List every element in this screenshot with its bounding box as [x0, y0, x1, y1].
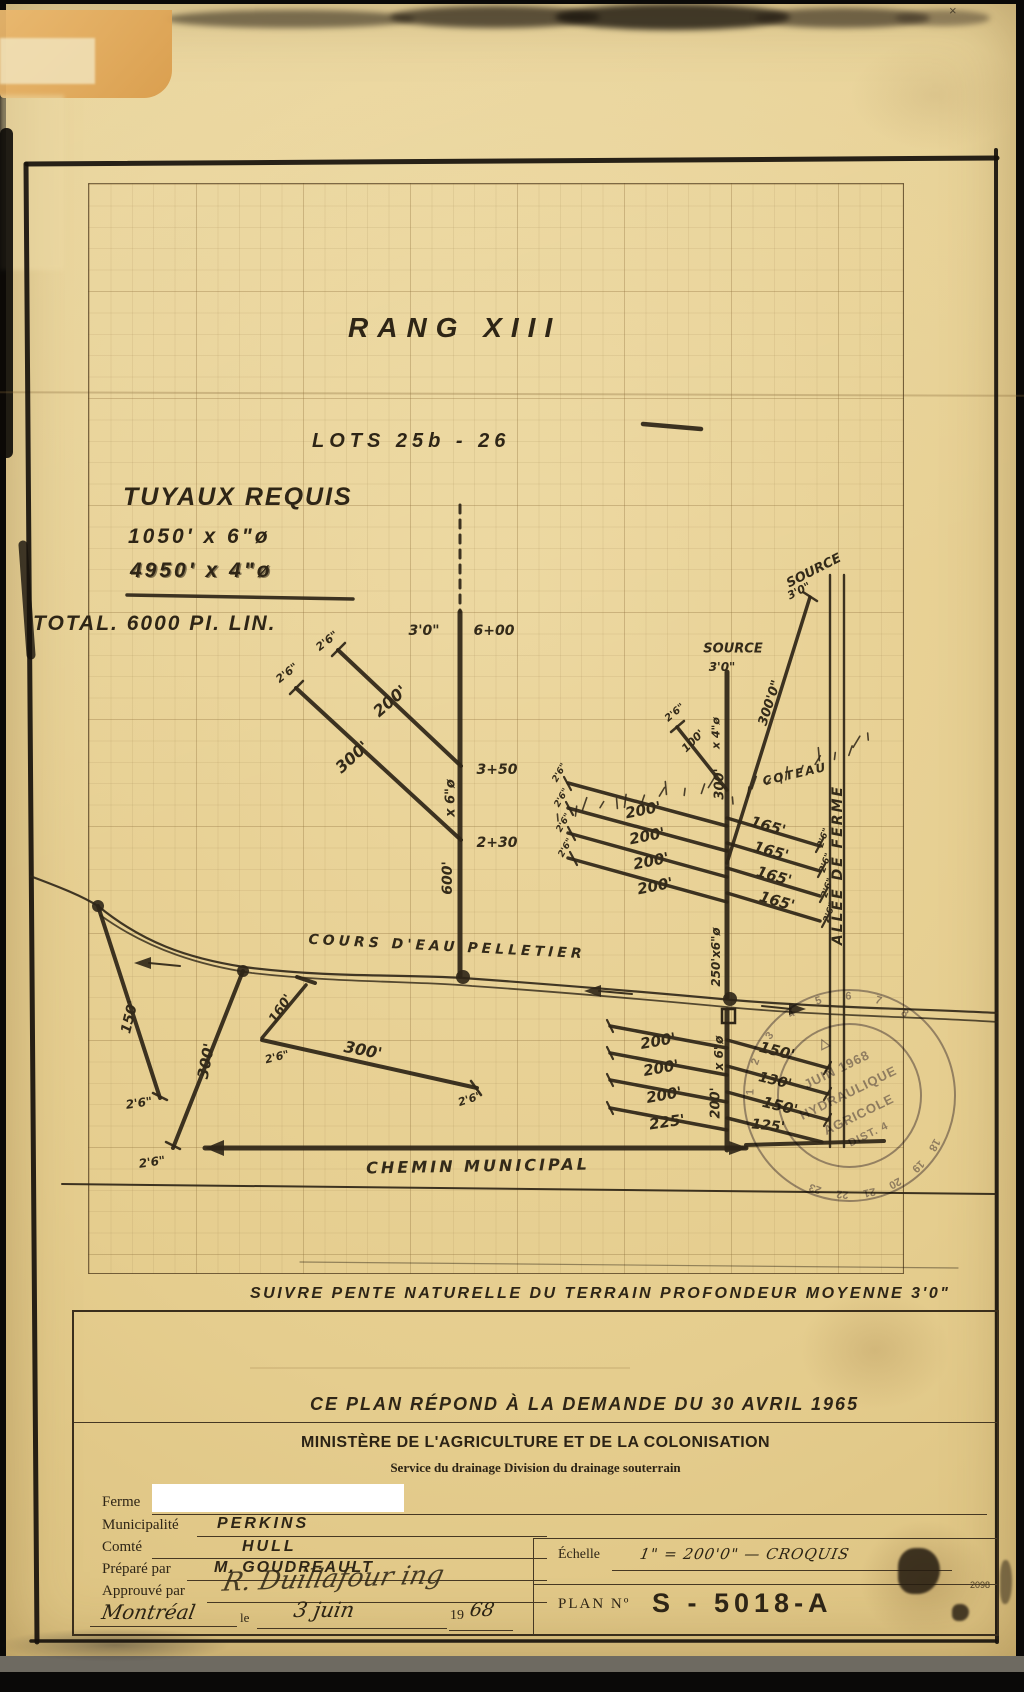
echelle-label: Échelle [558, 1547, 600, 1563]
title-block: CE PLAN RÉPOND À LA DEMANDE DU 30 AVRIL … [72, 1310, 999, 1636]
lots-subtitle: LOTS 25b - 26 [312, 430, 510, 453]
year-handwritten: 68 [468, 1599, 496, 1621]
stamp-ring-number: 6 [845, 990, 851, 1002]
measurement-label: 3'0" [709, 660, 736, 674]
drain-line [659, 787, 664, 796]
drain-line [665, 782, 666, 795]
pipes-required-line1: 1050' x 6"ø [128, 525, 271, 549]
divider-line [533, 1538, 997, 1539]
field-line [197, 1536, 547, 1537]
outlet-node [92, 900, 104, 912]
outlet-node [723, 992, 737, 1006]
measurement-label: 2+30 [477, 835, 518, 851]
field-line [449, 1630, 513, 1631]
drain-line [300, 1262, 958, 1268]
drain-line [617, 799, 618, 809]
drain-line [583, 798, 587, 810]
field-line [257, 1628, 447, 1629]
field-line [207, 1602, 547, 1603]
field-value-municipalite: PERKINS [217, 1515, 309, 1533]
field-label-comte: Comté [102, 1539, 142, 1556]
slope-note: SUIVRE PENTE NATURELLE DU TERRAIN PROFON… [250, 1285, 950, 1303]
measurement-label: 300' [713, 768, 728, 799]
sheet-frame-line [27, 158, 997, 164]
year-prefix: 19 [450, 1608, 464, 1624]
field-label-ferme: Ferme [102, 1494, 140, 1511]
measurement-label: 3+50 [477, 762, 518, 778]
flow-arrowhead [729, 1141, 748, 1155]
service-subtitle: Service du drainage Division du drainage… [74, 1460, 997, 1476]
pipes-total: TOTAL. 6000 PI. LIN. [33, 612, 276, 636]
drain-line [732, 797, 733, 804]
drain-line [849, 746, 852, 755]
measurement-label: 200' [709, 1087, 724, 1118]
drain-line [818, 748, 819, 761]
measurement-label: CHEMIN MUNICIPAL [366, 1155, 590, 1178]
le-label: le [240, 1610, 249, 1626]
drain-line [557, 814, 558, 821]
drain-line [575, 806, 576, 816]
drain-line [643, 424, 701, 429]
ministry-title: MINISTÈRE DE L'AGRICULTURE ET DE LA COLO… [74, 1434, 997, 1452]
measurement-label: 3'0" [408, 623, 439, 639]
drain-line [853, 736, 860, 747]
field-label-approuve-par: Approuvé par [102, 1583, 185, 1600]
field-label-prepare-par: Préparé par [102, 1561, 171, 1578]
demande-note: CE PLAN RÉPOND À LA DEMANDE DU 30 AVRIL … [310, 1394, 859, 1415]
drain-line [684, 788, 685, 795]
column-divider [533, 1538, 534, 1634]
pipes-required-line2: 4950' x 4"ø [130, 559, 273, 583]
sheet-frame-line [26, 164, 37, 1642]
pipes-required-heading: TUYAUX REQUIS [123, 483, 353, 512]
drain-line [701, 784, 704, 793]
outlet-node [237, 965, 249, 977]
measurement-label: x 6"ø [444, 779, 459, 817]
field-label-municipalite: Municipalité [102, 1517, 179, 1534]
drain-line [868, 733, 869, 740]
drain-line [127, 595, 353, 599]
outlet-node [456, 970, 470, 984]
measurement-label: ALLÉE DE FERME [830, 785, 846, 945]
date-handwritten: 3 juin [292, 1598, 357, 1622]
flow-arrowhead [134, 957, 151, 969]
measurement-label: SOURCE [703, 642, 762, 657]
stamp-ring-number: 22 [835, 1188, 848, 1201]
stamp-ring-number: 21 [862, 1185, 876, 1199]
plan-number-label: PLAN Nº [558, 1596, 630, 1613]
rang-title: RANG XIII [348, 312, 561, 344]
measurement-label: 600' [440, 861, 456, 895]
measurement-label: 250'x6"ø [709, 927, 723, 986]
field-value-comte: HULL [242, 1538, 297, 1556]
redaction-box [152, 1484, 404, 1512]
place-handwritten: Montréal [100, 1600, 197, 1624]
measurement-label: 6+00 [474, 623, 515, 639]
plan-number-value: S - 5018-A [652, 1588, 833, 1619]
echelle-value: 1" = 200'0" — CROQUIS [638, 1545, 851, 1563]
drain-line [149, 963, 180, 966]
drain-line [834, 752, 835, 759]
measurement-label: x 4"ø [710, 717, 723, 749]
flow-arrowhead [205, 1140, 224, 1156]
sheet-number: 2098 [970, 1580, 990, 1590]
drain-line [600, 802, 604, 808]
field-line [90, 1626, 237, 1627]
divider-line [74, 1422, 997, 1423]
